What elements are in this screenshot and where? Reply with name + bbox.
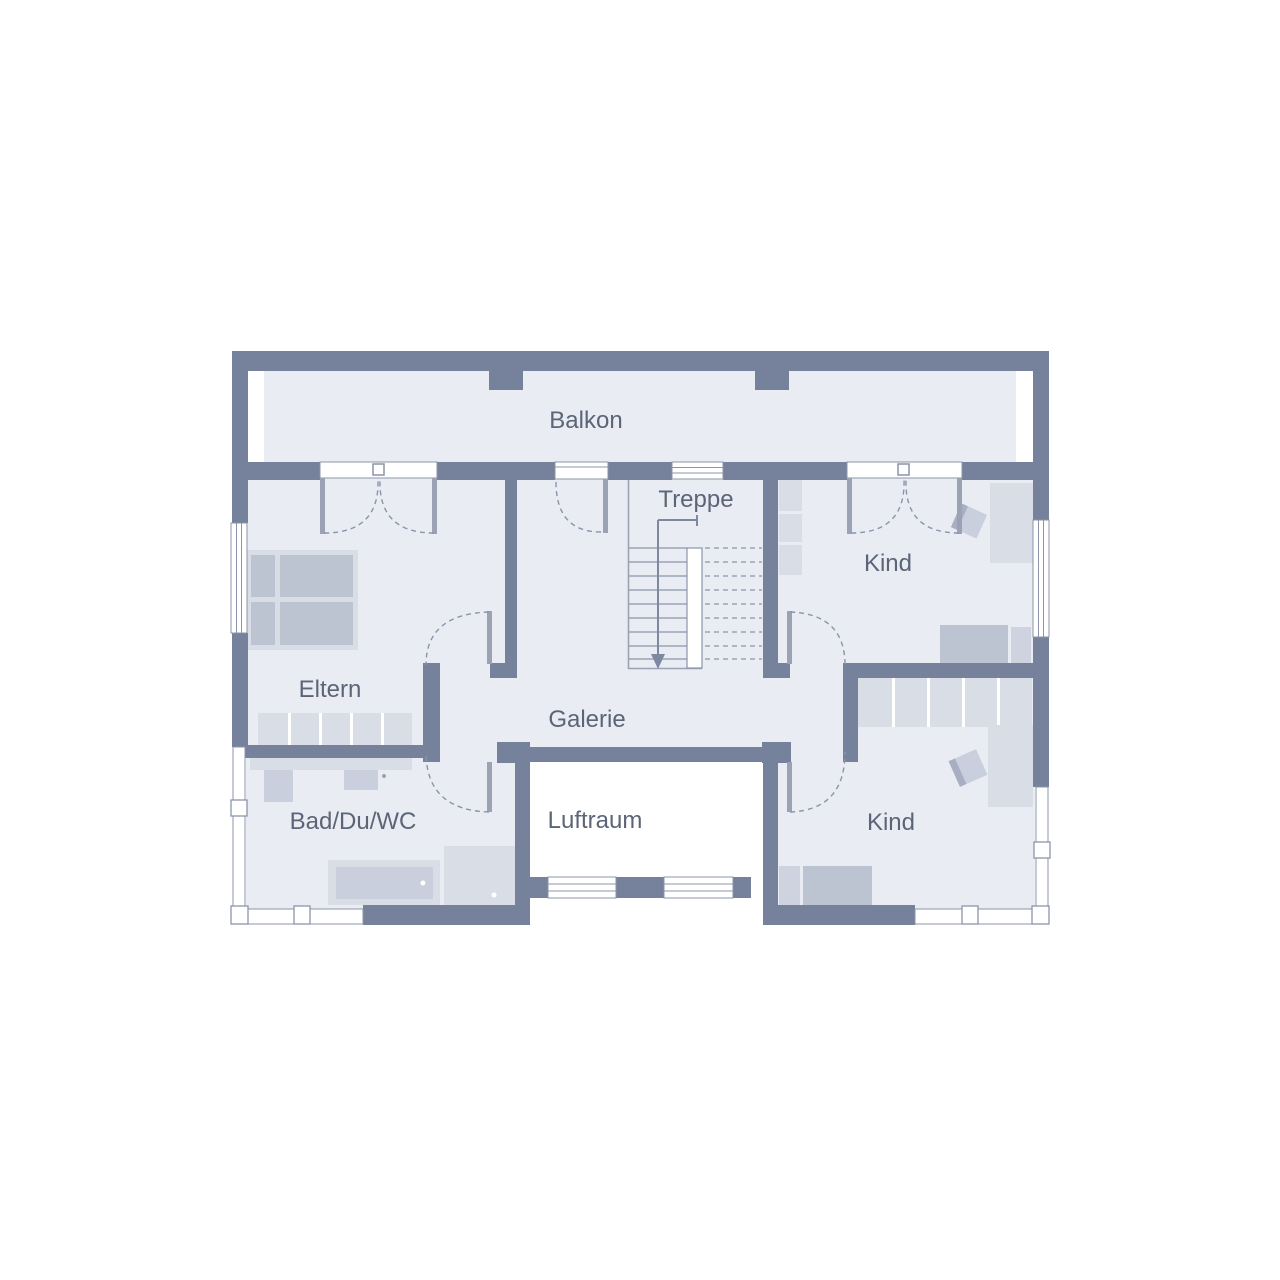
upper-band-floor [246,478,1035,664]
room-label-bad: Bad/Du/WC [290,808,417,835]
child1-desk [990,483,1033,563]
wall-cap [490,663,517,678]
sink [264,770,293,802]
parents-wardrobe [258,713,412,745]
wall-pier-left [423,663,440,762]
wall-luftraum-bottom [733,877,751,898]
floor-plan-page: Balkon Treppe Kind Eltern Galerie Bad/Du… [0,0,1280,1280]
shower [444,846,515,905]
outer-wall-left [232,371,248,523]
wall-luftraum-bottom [524,877,548,898]
child2-bed [779,866,872,907]
wall-eltern-galerie [505,478,517,664]
wall-kind-divider [843,663,1033,678]
balcony-pier [489,371,523,390]
stair-handrail [687,548,702,668]
stair-closet-shelves [779,480,802,575]
bathtub [328,860,440,905]
child2-desk [988,725,1033,807]
door-handle-icon [373,464,384,475]
window-treppe-north [672,462,723,479]
room-label-galerie: Galerie [548,706,625,733]
door-handle-icon [898,464,909,475]
wall-pier-right [843,663,858,762]
room-label-kind-top: Kind [864,550,912,577]
outer-wall-bottom-left [363,905,530,925]
window-kind1-east [1033,520,1049,637]
wall-luftraum-left [515,747,530,925]
recess-below-luftraum [530,898,763,928]
window-eltern-west [231,523,247,633]
outer-wall-left [232,633,248,747]
room-label-kind-bottom: Kind [867,809,915,836]
wall-eltern-bad [240,745,423,758]
room-label-eltern: Eltern [299,676,362,703]
child1-bed [940,625,1031,665]
parents-bed [246,550,358,650]
outer-wall-right [1033,637,1049,787]
floor-surfaces [246,371,1035,928]
room-label-luftraum: Luftraum [548,807,643,834]
front-wall [723,462,847,480]
wall-luftraum-right [763,747,778,925]
wall-stair-right [763,478,778,664]
outer-wall-bottom-right [763,905,915,925]
balcony-pier [755,371,789,390]
room-label-treppe: Treppe [658,486,733,513]
wall-cap [763,663,790,678]
front-wall [607,462,672,480]
outer-wall-top [232,351,1049,371]
child2-wardrobe [858,678,1032,727]
room-label-balkon: Balkon [549,407,622,434]
sink [344,770,378,790]
floor-plan: Balkon Treppe Kind Eltern Galerie Bad/Du… [0,0,1280,1280]
front-wall [248,462,320,480]
outer-wall-right [1033,371,1049,520]
balcony-floor [264,371,1016,463]
wall-luftraum-bottom [616,877,664,898]
front-wall [962,462,1033,480]
wall-galerie-luftraum [512,747,778,762]
front-wall [437,462,555,480]
